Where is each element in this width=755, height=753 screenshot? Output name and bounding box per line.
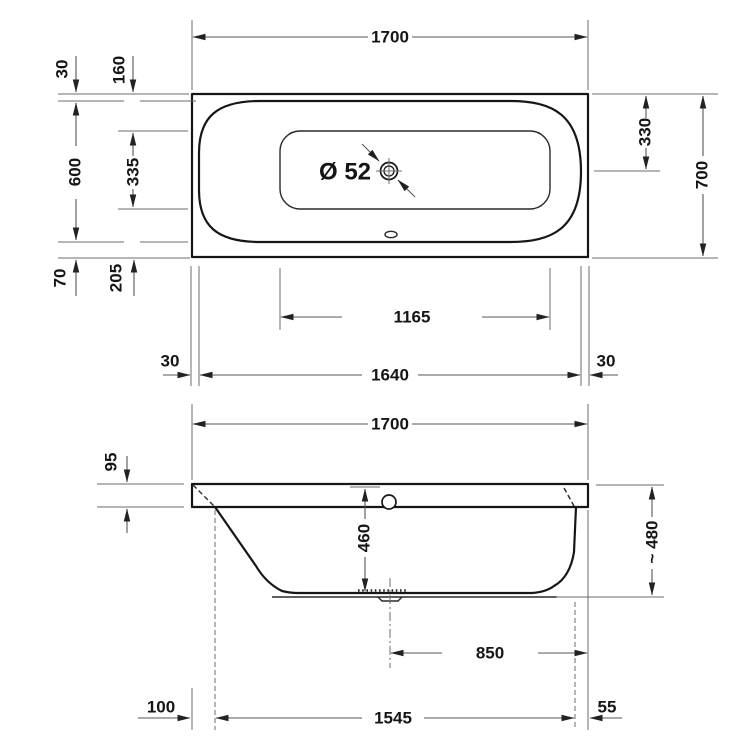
technical-drawing-page: 1700 30 160 600 335 70 205 Ø 52 330 700 … — [0, 0, 755, 753]
hidden-edge-right — [564, 488, 574, 506]
dim-section-base-offset-left: 100 — [147, 698, 175, 717]
dim-section-length-overall: 1700 — [371, 415, 409, 434]
dim-plan-floor-width: 335 — [124, 158, 143, 186]
dim-section-drain-from-right: 850 — [476, 644, 504, 663]
dim-plan-floor-offset-top: 160 — [110, 56, 129, 84]
dim-plan-rim-offset-top: 30 — [53, 60, 72, 79]
bathtub-drawing: 1700 30 160 600 335 70 205 Ø 52 330 700 … — [0, 0, 755, 753]
dim-section-rim-height: 95 — [102, 453, 121, 472]
dim-section-inner-depth: 460 — [355, 524, 374, 552]
dim-plan-rim-offset-bottom: 70 — [51, 269, 70, 288]
dim-section-height-overall: ~ 480 — [643, 520, 662, 563]
dim-section-base-offset-right: 55 — [598, 698, 617, 717]
dim-plan-rim-offset-right: 30 — [597, 352, 616, 371]
dim-plan-width-overall: 700 — [693, 161, 712, 189]
dim-drain-diameter: Ø 52 — [319, 159, 371, 186]
dim-plan-width-inner: 600 — [66, 158, 85, 186]
dim-section-base-length: 1545 — [374, 709, 412, 728]
tub-basin-profile — [215, 507, 576, 593]
dim-plan-floor-length: 1165 — [394, 308, 431, 327]
hidden-edge-left — [193, 485, 214, 506]
side-view-dimension-lines — [127, 424, 652, 718]
top-view-dimension-labels: 1700 30 160 600 335 70 205 Ø 52 330 700 … — [51, 28, 712, 385]
top-view: 1700 30 160 600 335 70 205 Ø 52 330 700 … — [51, 20, 719, 386]
side-view: 1700 95 460 ~ 480 850 100 1545 55 — [97, 404, 664, 730]
dim-plan-length-overall: 1700 — [371, 28, 409, 47]
dim-plan-floor-offset-bottom: 205 — [107, 264, 126, 292]
overflow-hole — [382, 495, 396, 509]
dim-plan-drain-from-top: 330 — [636, 118, 655, 146]
side-view-dimension-labels: 1700 95 460 ~ 480 850 100 1545 55 — [102, 415, 662, 728]
dim-plan-length-inner: 1640 — [371, 366, 409, 385]
side-view-extension-lines — [97, 404, 664, 730]
top-view-dimension-lines — [76, 37, 703, 375]
top-view-extension-lines — [58, 20, 718, 386]
dim-plan-rim-offset-left: 30 — [161, 352, 180, 371]
overflow-slot — [385, 231, 397, 237]
